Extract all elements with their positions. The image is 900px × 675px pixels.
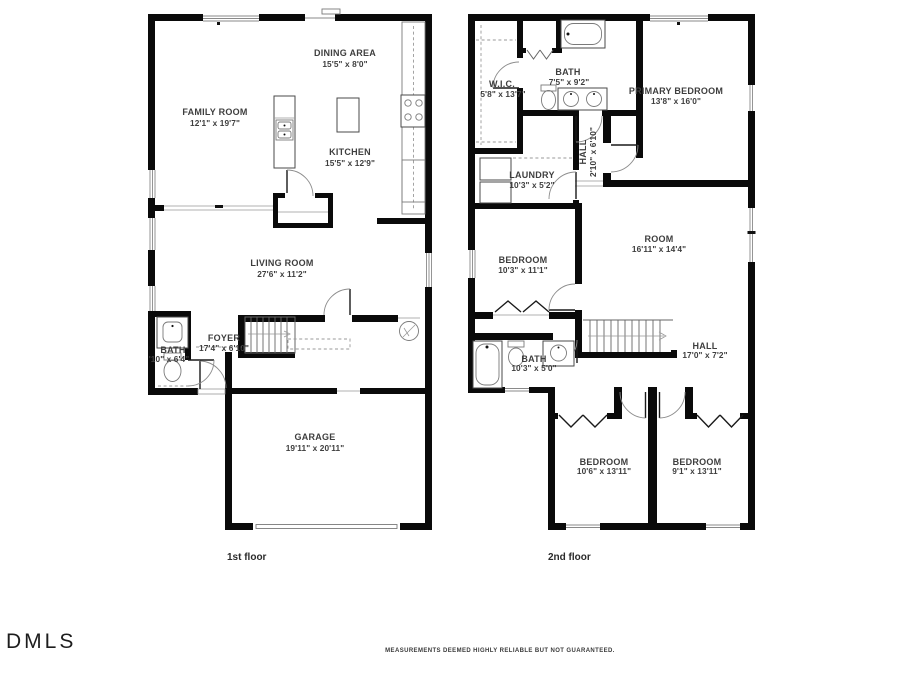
water-heater-icon <box>400 322 419 341</box>
svg-text:LIVING ROOM: LIVING ROOM <box>250 258 313 268</box>
bathroom-sink-icon <box>157 317 188 348</box>
interior-walls <box>148 205 425 391</box>
staircase <box>245 317 350 353</box>
svg-text:17'4" x 6'10": 17'4" x 6'10" <box>199 343 249 353</box>
svg-text:BATH: BATH <box>555 67 580 77</box>
svg-text:15'5" x 8'0": 15'5" x 8'0" <box>322 59 367 69</box>
svg-text:FOYER: FOYER <box>208 333 241 343</box>
staircase <box>583 320 673 352</box>
room-label-laundry: LAUNDRY 10'3" x 5'2" <box>509 170 554 190</box>
svg-text:HALL: HALL <box>578 139 588 164</box>
room-label-family-room: FAMILY ROOM 12'1" x 19'7" <box>182 107 247 128</box>
floorplan-2nd-floor: W.I.C. 5'8" x 13'7" BATH 7'5" x 9'2" PRI… <box>468 14 756 564</box>
pantry-closet <box>273 170 333 228</box>
svg-text:DINING AREA: DINING AREA <box>314 48 376 58</box>
svg-text:LAUNDRY: LAUNDRY <box>509 170 554 180</box>
svg-text:5'8" x 13'7": 5'8" x 13'7" <box>480 89 525 99</box>
floor2-caption: 2nd floor <box>548 552 591 563</box>
svg-text:9'1" x 13'11": 9'1" x 13'11" <box>672 466 722 476</box>
svg-text:2'10" x 6'10": 2'10" x 6'10" <box>588 127 598 177</box>
room-label-hall-small: HALL 2'10" x 6'10" <box>578 127 598 177</box>
svg-text:BEDROOM: BEDROOM <box>499 255 548 265</box>
room-label-primary-bedroom: PRIMARY BEDROOM 13'8" x 16'0" <box>629 86 723 106</box>
floorplan-1st-floor: FAMILY ROOM 12'1" x 19'7" DINING AREA 15… <box>148 9 433 563</box>
svg-text:ROOM: ROOM <box>645 234 674 244</box>
room-label-bath-top: BATH 7'5" x 9'2" <box>549 67 590 87</box>
stove-icon <box>401 95 425 127</box>
porch-step <box>198 389 225 394</box>
dryer-icon <box>480 182 511 203</box>
svg-text:15'5" x 12'9": 15'5" x 12'9" <box>325 158 375 168</box>
disclaimer-text: MEASUREMENTS DEEMED HIGHLY RELIABLE BUT … <box>100 648 900 654</box>
svg-text:7'5" x 9'2": 7'5" x 9'2" <box>549 77 590 87</box>
double-sink-vanity-icon <box>558 88 607 110</box>
room-label-dining-area: DINING AREA 15'5" x 8'0" <box>314 48 376 69</box>
floor1-caption: 1st floor <box>227 552 267 563</box>
svg-text:13'8" x 16'0": 13'8" x 16'0" <box>651 96 701 106</box>
garage-door <box>253 523 400 531</box>
room-label-bedroom-right: BEDROOM 9'1" x 13'11" <box>672 457 722 476</box>
room-label-hall: HALL 17'0" x 7'2" <box>682 341 727 360</box>
svg-text:27'6" x 11'2": 27'6" x 11'2" <box>257 269 307 279</box>
bathtub-icon <box>561 20 605 48</box>
floorplan-page: FAMILY ROOM 12'1" x 19'7" DINING AREA 15… <box>0 0 900 675</box>
kitchen-sink-counter <box>274 96 295 168</box>
svg-text:10'3" x 5'0": 10'3" x 5'0" <box>511 363 556 373</box>
room-label-wic: W.I.C. 5'8" x 13'7" <box>480 79 525 99</box>
svg-text:FAMILY ROOM: FAMILY ROOM <box>182 107 247 117</box>
floorplan-canvas: FAMILY ROOM 12'1" x 19'7" DINING AREA 15… <box>0 0 900 675</box>
kitchen-island <box>337 98 359 132</box>
room-label-room: ROOM 16'11" x 14'4" <box>632 234 686 254</box>
room-label-garage: GARAGE 19'11" x 20'11" <box>286 432 345 453</box>
room-label-kitchen: KITCHEN 15'5" x 12'9" <box>325 147 375 168</box>
bathtub-icon <box>473 341 502 388</box>
svg-text:GARAGE: GARAGE <box>294 432 335 442</box>
svg-text:10'3" x 11'1": 10'3" x 11'1" <box>498 265 548 275</box>
svg-text:17'0" x 7'2": 17'0" x 7'2" <box>682 350 727 360</box>
svg-text:19'11" x 20'11": 19'11" x 20'11" <box>286 443 345 453</box>
toilet-icon <box>541 85 556 110</box>
svg-text:PRIMARY BEDROOM: PRIMARY BEDROOM <box>629 86 723 96</box>
washer-icon <box>480 158 511 180</box>
room-label-bedroom-left: BEDROOM 10'6" x 13'11" <box>577 457 631 476</box>
dmls-logo: DMLS <box>6 630 76 654</box>
svg-text:10'6" x 13'11": 10'6" x 13'11" <box>577 466 631 476</box>
room-label-bedroom-mid: BEDROOM 10'3" x 11'1" <box>498 255 548 275</box>
svg-text:16'11" x 14'4": 16'11" x 14'4" <box>632 244 686 254</box>
svg-text:10'3" x 5'2": 10'3" x 5'2" <box>509 180 554 190</box>
svg-text:W.I.C.: W.I.C. <box>489 79 515 89</box>
svg-text:12'1" x 19'7": 12'1" x 19'7" <box>190 118 240 128</box>
svg-text:KITCHEN: KITCHEN <box>329 147 371 157</box>
svg-text:'10" x 6'4": '10" x 6'4" <box>149 354 190 364</box>
room-label-living-room: LIVING ROOM 27'6" x 11'2" <box>250 258 313 279</box>
